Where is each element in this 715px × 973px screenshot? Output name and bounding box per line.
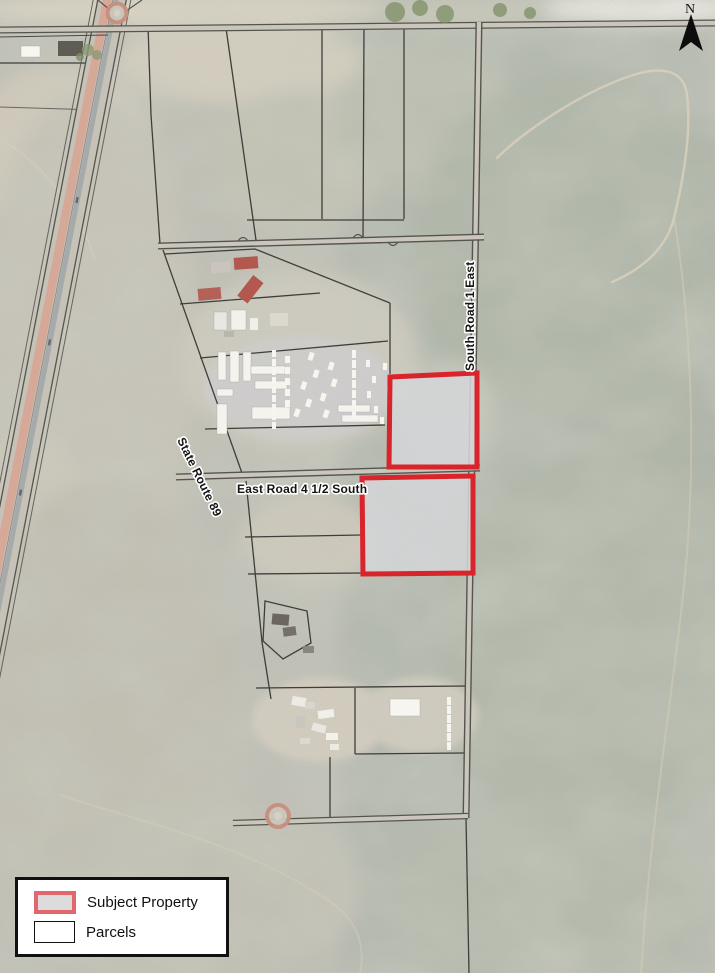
roundabout-north [108, 4, 127, 23]
legend-swatch-subject-property [34, 891, 76, 914]
north-label: N [685, 2, 695, 17]
legend-swatch-parcels [34, 921, 75, 943]
legend-label-parcels: Parcels [86, 925, 136, 940]
legend-item-subject-property: Subject Property [34, 891, 226, 914]
road-label-east-road-4-half-south: East Road 4 1/2 South [237, 482, 367, 496]
subject-property-north-parcel [389, 373, 477, 467]
subject-property-south-parcel [362, 476, 473, 574]
map-canvas: State Route 89 South Road 1 East East Ro… [0, 0, 715, 973]
legend-label-subject-property: Subject Property [87, 895, 198, 910]
roundabout-south [267, 805, 289, 827]
aerial-parcel-map: State Route 89 South Road 1 East East Ro… [0, 0, 715, 973]
legend-item-parcels: Parcels [34, 921, 226, 943]
road-label-south-road-1-east: South Road 1 East [463, 262, 477, 371]
legend: Subject Property Parcels [15, 877, 229, 957]
